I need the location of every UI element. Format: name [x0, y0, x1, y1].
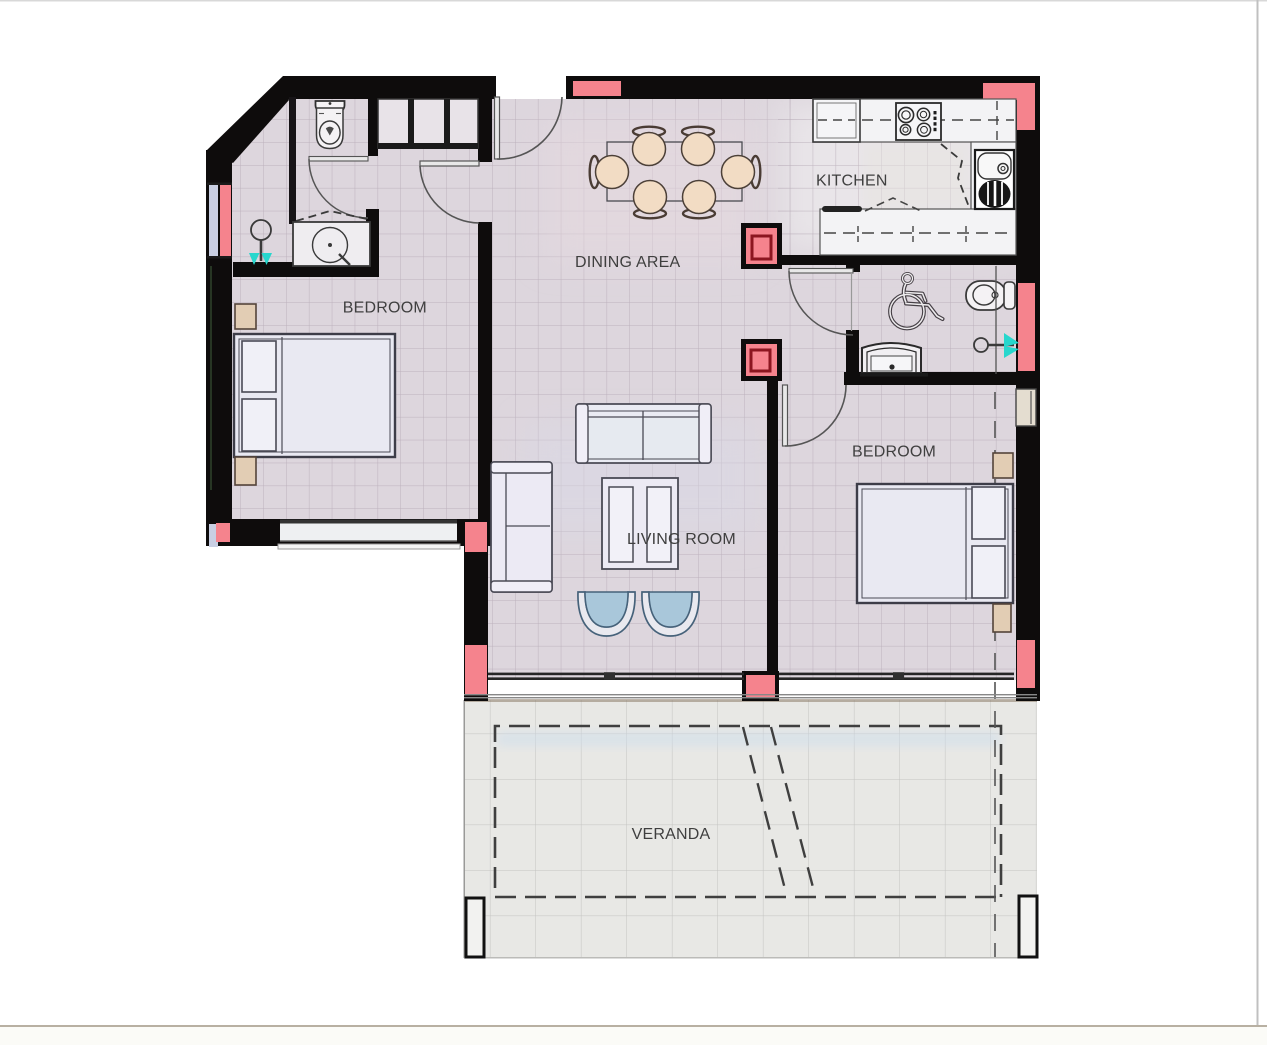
svg-text:KITCHEN: KITCHEN	[816, 173, 888, 190]
svg-text:VERANDA: VERANDA	[632, 826, 711, 843]
svg-text:DINING AREA: DINING AREA	[575, 254, 680, 271]
svg-text:BEDROOM: BEDROOM	[852, 444, 936, 461]
svg-text:LIVING ROOM: LIVING ROOM	[627, 531, 736, 548]
svg-text:BEDROOM: BEDROOM	[343, 300, 427, 317]
